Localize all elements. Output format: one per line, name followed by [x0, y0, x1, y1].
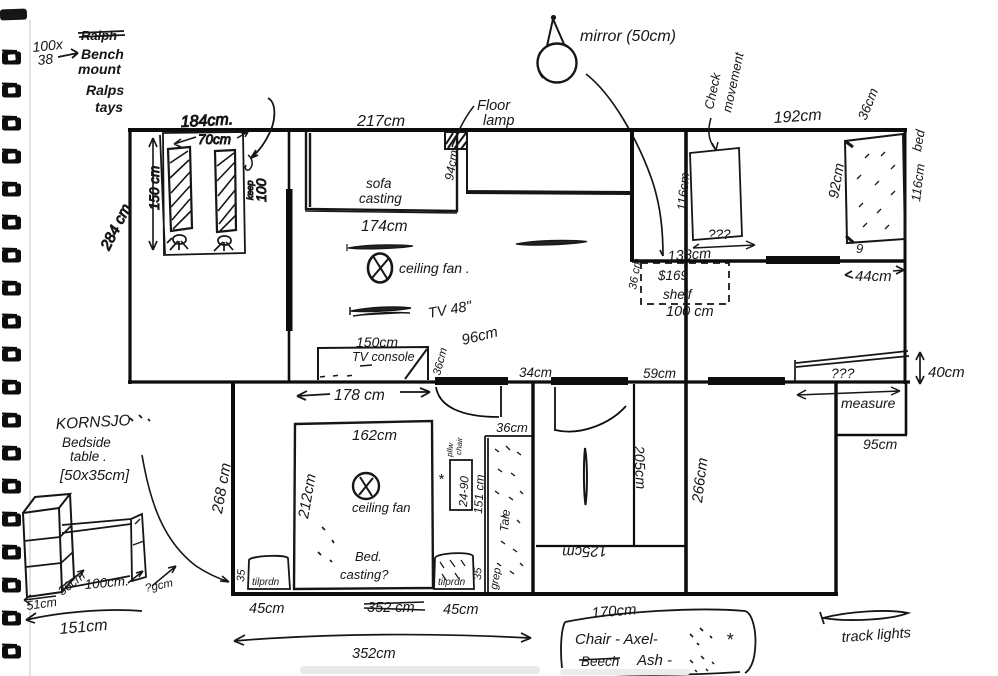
svg-text:150cm: 150cm	[356, 334, 398, 350]
svg-text:44cm: 44cm	[855, 268, 892, 285]
svg-text:table .: table .	[70, 449, 107, 464]
svg-text:217cm: 217cm	[356, 113, 405, 130]
svg-text:Floor: Floor	[477, 98, 511, 114]
svg-text:34cm: 34cm	[519, 365, 552, 380]
svg-text:59cm: 59cm	[643, 366, 676, 381]
svg-text:tilprdn: tilprdn	[252, 577, 280, 588]
svg-text:100 cm: 100 cm	[666, 304, 714, 320]
svg-text:tays: tays	[95, 99, 123, 115]
svg-text:35: 35	[235, 568, 248, 582]
svg-text:174cm: 174cm	[361, 218, 408, 235]
svg-text:150 cm: 150 cm	[147, 166, 162, 210]
svg-text:Ralps: Ralps	[86, 82, 124, 98]
svg-text:Bed.: Bed.	[355, 549, 382, 564]
svg-text:Bedside: Bedside	[62, 435, 111, 450]
svg-text:38: 38	[37, 50, 54, 68]
svg-text:95cm: 95cm	[863, 436, 898, 452]
svg-text:*: *	[726, 630, 734, 650]
svg-text:???: ???	[831, 365, 855, 381]
svg-text:40cm: 40cm	[928, 364, 965, 381]
svg-text:tilprdn: tilprdn	[438, 577, 466, 588]
svg-text:keep: keep	[245, 180, 255, 200]
svg-text:Tale: Tale	[497, 509, 513, 533]
svg-text:70cm: 70cm	[198, 132, 231, 147]
svg-text:???: ???	[708, 227, 731, 242]
svg-text:Chair - Axel-: Chair - Axel-	[575, 631, 658, 648]
svg-text:35: 35	[472, 567, 484, 581]
svg-text:125cm: 125cm	[562, 542, 608, 561]
svg-text:9: 9	[856, 241, 863, 256]
svg-text:ceiling fan: ceiling fan	[352, 500, 411, 515]
svg-text:100: 100	[253, 178, 269, 202]
svg-text:184cm.: 184cm.	[180, 111, 233, 131]
svg-text:205cm: 205cm	[630, 444, 648, 489]
svg-text:TV console: TV console	[352, 350, 415, 364]
svg-text:36cm: 36cm	[496, 420, 528, 435]
svg-text:352cm: 352cm	[352, 646, 396, 662]
svg-text:Bench: Bench	[81, 46, 124, 62]
svg-text:45cm: 45cm	[443, 602, 478, 618]
svg-text:$169: $169	[657, 268, 689, 283]
svg-text:lamp: lamp	[483, 113, 514, 129]
svg-text:ceiling fan .: ceiling fan .	[399, 260, 470, 276]
svg-text:casting: casting	[359, 191, 402, 206]
svg-text:Beech: Beech	[581, 654, 619, 669]
svg-text:45cm: 45cm	[249, 601, 284, 617]
svg-text:sofa: sofa	[366, 176, 392, 191]
svg-text:178 cm: 178 cm	[334, 387, 385, 404]
svg-text:casting?: casting?	[340, 567, 389, 582]
svg-text:[50x35cm]: [50x35cm]	[59, 467, 130, 484]
svg-text:162cm: 162cm	[352, 427, 397, 444]
svg-text:mount: mount	[78, 61, 122, 77]
svg-text:192cm: 192cm	[773, 107, 822, 127]
svg-text:mirror (50cm): mirror (50cm)	[580, 28, 676, 45]
svg-text:24-90: 24-90	[456, 475, 472, 508]
svg-text:shelf: shelf	[663, 287, 693, 302]
svg-text:chair: chair	[454, 437, 465, 455]
svg-text:measure: measure	[841, 395, 896, 411]
svg-text:Ash -: Ash -	[636, 652, 672, 669]
